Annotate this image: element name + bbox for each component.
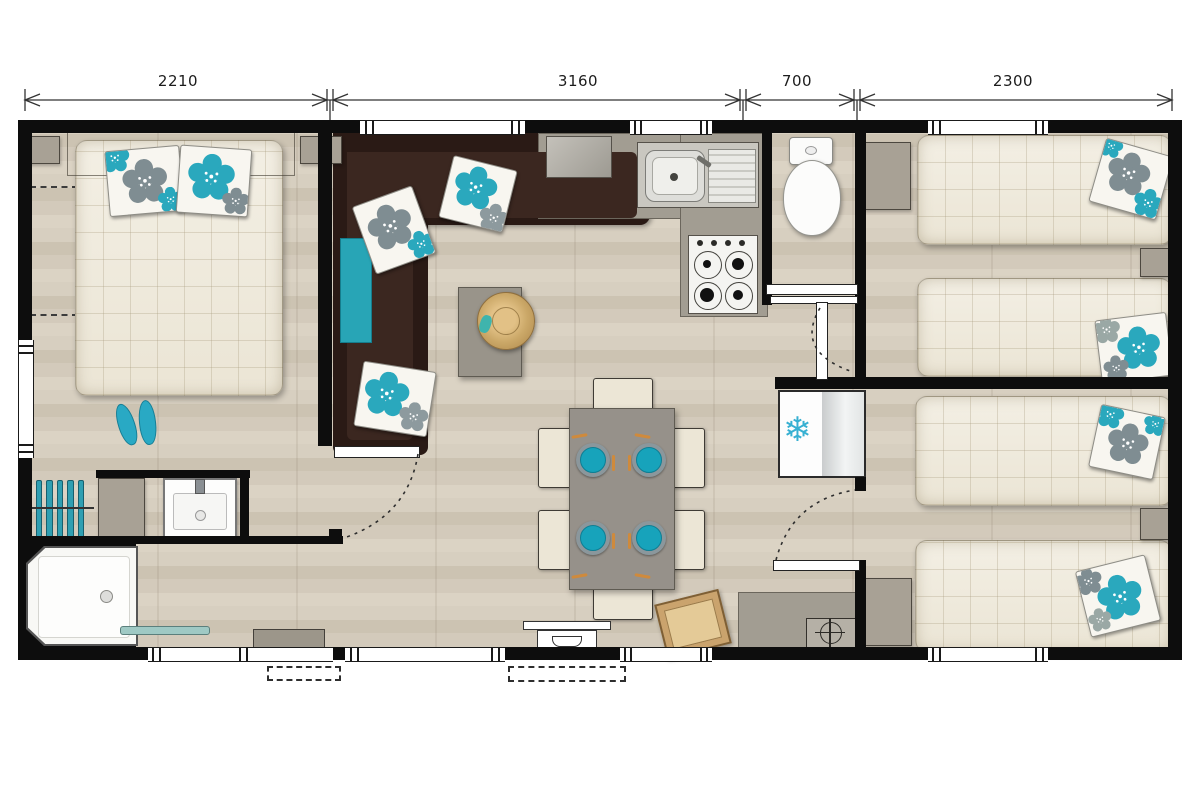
wall-bath-side	[240, 470, 249, 544]
door-leaf-wc	[766, 284, 858, 295]
burner	[725, 282, 753, 310]
snowflake-icon: ❄	[783, 410, 812, 450]
window	[360, 120, 525, 135]
wall-post	[329, 529, 342, 544]
wardrobe	[864, 578, 912, 646]
place-setting	[632, 443, 666, 477]
dining-chair	[538, 428, 572, 488]
pillow	[1088, 404, 1166, 480]
wall-divider-lower	[855, 560, 866, 650]
door-leaf-sleeping-area	[334, 446, 420, 458]
pillow	[104, 145, 184, 217]
wall-bedrooms-divider	[775, 377, 1182, 389]
window	[148, 647, 252, 662]
kitchen-sink	[637, 142, 759, 208]
toilet-bowl	[783, 160, 841, 236]
wall-bath-top	[96, 470, 250, 478]
dimension-3160: 3160	[551, 72, 605, 90]
straw-hat	[477, 292, 535, 350]
window	[18, 340, 34, 458]
cutlery	[628, 455, 631, 471]
exterior-wall-right	[1168, 120, 1182, 660]
dimension-2210: 2210	[151, 72, 205, 90]
burner	[725, 251, 753, 279]
door-leaf-bedroom-lower	[773, 560, 860, 571]
floor-plan: 2210 3160 700 2300	[0, 0, 1200, 800]
door-opening-side	[252, 647, 333, 662]
dining-chair	[538, 510, 572, 570]
sofa-chaise-cushion	[340, 238, 372, 343]
place-setting	[576, 521, 610, 555]
window	[345, 647, 505, 662]
place-setting	[576, 443, 610, 477]
window	[630, 120, 712, 135]
pillow	[176, 145, 253, 218]
dining-chair	[593, 586, 653, 620]
dining-chair	[671, 510, 705, 570]
wardrobe	[864, 142, 911, 210]
shower-drain	[100, 590, 113, 603]
counter-appliance-panel	[546, 136, 612, 178]
pillow	[1094, 312, 1173, 384]
radiator-rail	[28, 507, 94, 509]
sofa-pillow	[353, 361, 436, 438]
window	[928, 647, 1048, 662]
dining-chair	[593, 378, 653, 412]
door-leaf-bedroom-upper	[816, 302, 828, 380]
dimension-700: 700	[775, 72, 819, 90]
dimension-2300: 2300	[986, 72, 1040, 90]
fridge-door	[822, 392, 864, 476]
boiler	[806, 618, 856, 649]
wall-wc-left	[762, 133, 772, 305]
cutlery	[628, 533, 631, 549]
burner	[694, 251, 722, 279]
entry-step-left	[267, 666, 341, 681]
washbasin	[163, 478, 237, 539]
dining-chair	[671, 428, 705, 488]
wall-bedroom-living	[318, 133, 332, 446]
bath-cabinet	[98, 478, 145, 537]
wall-bath-bottom	[130, 536, 343, 544]
sink-drainer	[708, 149, 756, 203]
entry-step-main	[508, 666, 626, 682]
basin-faucet	[195, 479, 205, 494]
bedside-shelf-left	[28, 136, 60, 164]
cutlery	[612, 455, 615, 471]
basin-drain	[195, 510, 206, 521]
door-frame-wc	[770, 296, 858, 304]
window	[928, 120, 1048, 135]
place-setting	[632, 521, 666, 555]
sink-drain	[670, 173, 678, 181]
hat-ribbon	[477, 314, 493, 335]
wall-divider-upper	[855, 133, 866, 379]
cutlery	[612, 533, 615, 549]
window	[620, 647, 712, 662]
stove	[688, 235, 758, 314]
burner	[694, 282, 722, 310]
wall-divider-post	[855, 477, 866, 491]
fridge: ❄	[778, 390, 866, 478]
shower-glass-door	[120, 626, 210, 635]
